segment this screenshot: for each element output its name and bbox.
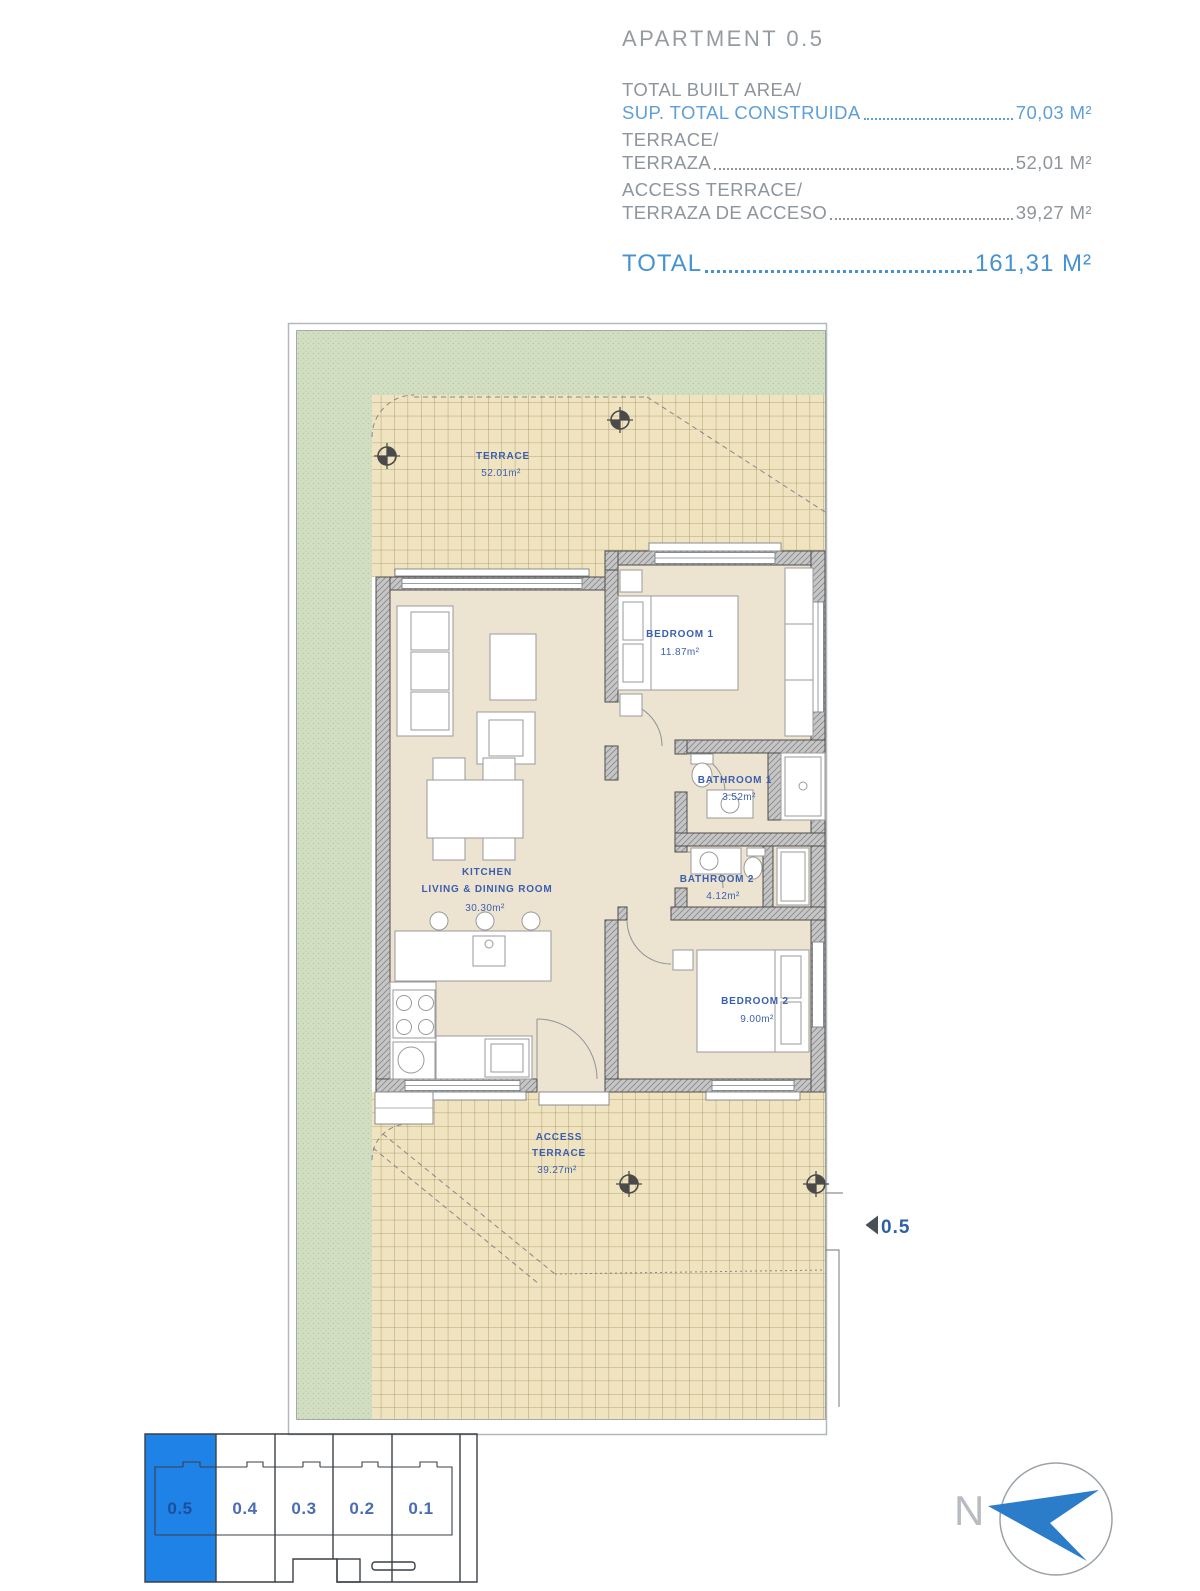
north-arrow-icon [988,1490,1099,1561]
dotted-leader [830,218,1013,220]
floor-plan-page: APARTMENT 0.5 TOTAL BUILT AREA/ SUP. TOT… [0,0,1200,1591]
total-label: TOTAL [622,250,702,278]
shower-2 [777,848,809,905]
dining-chair [433,838,465,860]
bathroom2-counter [691,848,741,874]
spec-row-access-terrace: ACCESS TERRACE/ TERRAZA DE ACCESO 39,27 … [622,178,1092,224]
minimap-label-01[interactable]: 0.1 [408,1499,433,1518]
closet [785,568,813,736]
spec-label-es: SUP. TOTAL CONSTRUIDA [622,101,861,124]
spec-row-built-area: TOTAL BUILT AREA/ SUP. TOTAL CONSTRUIDA … [622,78,1092,124]
spec-label: TERRACE/ [622,128,1092,151]
shower [781,753,825,820]
spec-row-terrace: TERRACE/ TERRAZA 52,01 M² [622,128,1092,174]
spec-total-row: TOTAL 161,31 M² [622,250,1092,278]
label-bathroom2-area: 4.12m² [706,891,740,902]
minimap-label-05[interactable]: 0.5 [167,1499,192,1518]
label-bathroom1-area: 3.52m² [722,792,756,803]
dining-chair [483,758,515,780]
label-terrace-area: 52.01m² [481,468,521,479]
entrance-step [539,1092,609,1105]
page-title: APARTMENT 0.5 [622,26,1092,52]
label-kitchen-line2: LIVING & DINING ROOM [422,884,553,895]
total-value: 161,31 M² [975,250,1092,278]
access-terrace-tiles [372,1092,825,1419]
toilet2-tank [747,848,765,856]
label-access-area: 39.27m² [537,1165,577,1176]
north-label: N [954,1487,984,1534]
floor-plan-drawing: TERRACE 52.01m² BEDROOM 1 11.87m² BATHRO… [287,322,947,1436]
spec-label: TOTAL BUILT AREA/ [622,78,1092,101]
minimap-label-04[interactable]: 0.4 [232,1499,257,1518]
label-access-line1: ACCESS [536,1132,582,1143]
lower-counter [436,1036,532,1079]
nightstand [620,694,642,716]
minimap-label-02[interactable]: 0.2 [349,1499,374,1518]
spec-value: 70,03 M² [1016,101,1092,124]
label-bathroom2: BATHROOM 2 [680,874,754,885]
armchair [490,634,536,700]
stool [476,912,494,930]
label-kitchen-area: 30.30m² [465,903,505,914]
minimap-label-03[interactable]: 0.3 [291,1499,316,1518]
stool [522,912,540,930]
dotted-leader [705,270,972,273]
unit-marker: 0.5 [866,1216,911,1239]
dotted-leader [864,118,1013,120]
dining-chair [483,838,515,860]
label-bathroom1: BATHROOM 1 [698,775,772,786]
spec-panel: APARTMENT 0.5 TOTAL BUILT AREA/ SUP. TOT… [622,26,1092,278]
dining-table [427,780,523,838]
stool [430,912,448,930]
label-kitchen-line1: KITCHEN [462,867,512,878]
bed-1 [618,596,738,690]
neighbour-outline [825,1193,843,1407]
spec-label-es: TERRAZA DE ACCESO [622,201,827,224]
label-bedroom1: BEDROOM 1 [646,629,714,640]
spec-label: ACCESS TERRACE/ [622,178,1092,201]
unit-marker-arrow-icon [866,1216,879,1235]
unit-selector-minimap: 0.5 0.4 0.3 0.2 0.1 [140,1422,490,1590]
spec-value: 39,27 M² [1016,201,1092,224]
label-bedroom2: BEDROOM 2 [721,996,789,1007]
unit-marker-label: 0.5 [881,1217,910,1238]
label-terrace: TERRACE [476,451,530,462]
dining-chair [433,758,465,780]
spec-label-es: TERRAZA [622,151,711,174]
compass: N [940,1452,1140,1591]
label-bedroom2-area: 9.00m² [740,1014,774,1025]
nightstand [620,570,642,592]
label-bedroom1-area: 11.87m² [661,647,700,658]
sofa [397,606,453,736]
spec-value: 52,01 M² [1016,151,1092,174]
dotted-leader [714,168,1013,170]
nightstand [673,950,693,970]
label-access-line2: TERRACE [532,1148,586,1159]
